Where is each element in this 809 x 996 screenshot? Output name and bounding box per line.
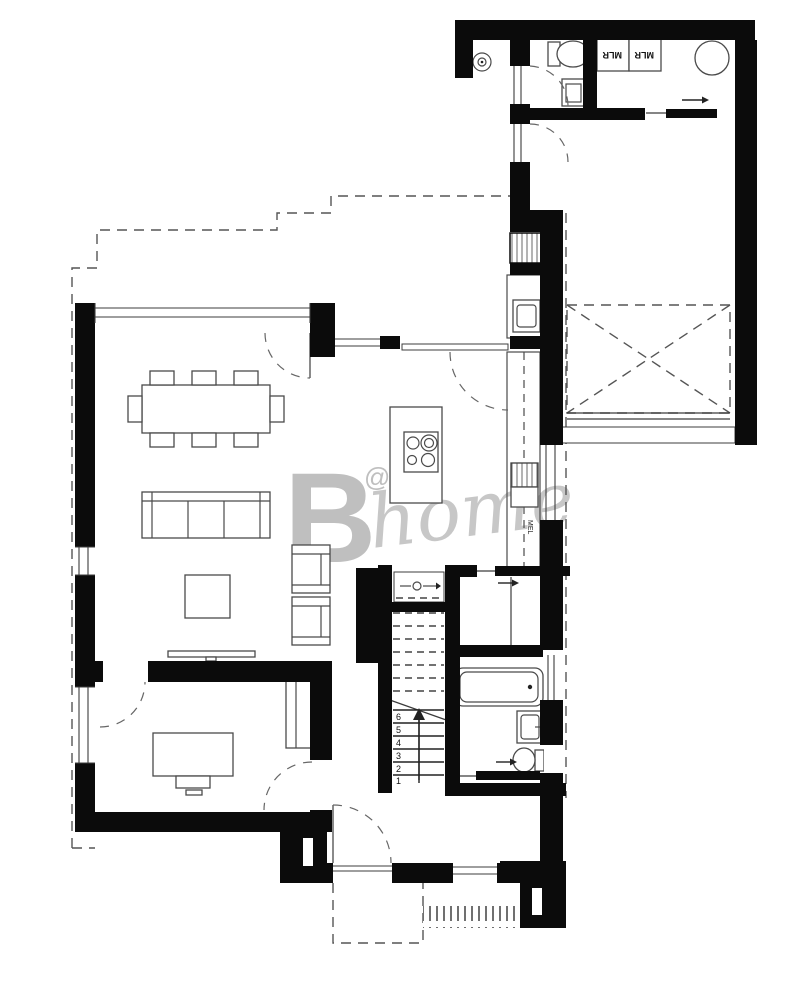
stair-direction-arrow	[413, 708, 425, 780]
wc-door-frame	[514, 66, 521, 104]
entrance-porch	[333, 883, 518, 943]
kitchen-sink	[513, 300, 540, 332]
hall-door-arc	[530, 124, 568, 162]
entrance-door-arc	[333, 805, 391, 863]
svg-text:3: 3	[396, 751, 401, 761]
svg-text:5: 5	[396, 725, 401, 735]
dining-table	[128, 371, 284, 447]
bathroom-toilet	[513, 748, 544, 772]
office-door2-arc	[264, 762, 312, 810]
office-desk	[153, 733, 233, 795]
chimney-shaft	[510, 233, 543, 263]
kitchen-door-leaf	[402, 344, 508, 350]
wc-toilet	[548, 41, 589, 67]
washer-dryer-units: MLR MLR	[597, 38, 661, 71]
armchair-bottom	[292, 597, 330, 645]
oven	[511, 463, 538, 507]
office-window	[75, 687, 95, 763]
stair-treads-upper	[393, 613, 444, 691]
office-door-arc	[100, 682, 145, 727]
dining-window	[335, 339, 380, 346]
doormat-grate	[423, 906, 518, 928]
stair-storage-box	[394, 572, 444, 602]
living-door-arc	[265, 333, 310, 378]
living-top-window	[95, 303, 310, 323]
appliance-label-left: MLR	[602, 50, 622, 60]
boiler	[695, 41, 729, 75]
vent-symbol-icon	[473, 53, 491, 71]
hall-window	[453, 867, 497, 874]
kitchen-unit-label: MEL	[526, 520, 533, 535]
carport-skylight	[560, 305, 735, 443]
kitchen-door-arc	[450, 352, 508, 410]
bathtub	[455, 668, 543, 706]
floor-plan-drawing: B @ home	[0, 0, 809, 996]
svg-text:1: 1	[396, 776, 401, 786]
sofa	[142, 492, 270, 538]
hall-door-frame	[514, 124, 521, 162]
svg-text:4: 4	[396, 738, 401, 748]
floor-plan-page: B @ home	[0, 0, 809, 996]
utility-sliding-door	[646, 97, 717, 119]
armchair-top	[292, 545, 330, 593]
cooktop	[404, 432, 438, 472]
living-left-window	[75, 547, 95, 575]
appliance-label-right: MLR	[634, 50, 654, 60]
tv-unit	[168, 651, 255, 661]
coffee-table	[185, 575, 230, 618]
svg-text:6: 6	[396, 712, 401, 722]
svg-text:2: 2	[396, 764, 401, 774]
